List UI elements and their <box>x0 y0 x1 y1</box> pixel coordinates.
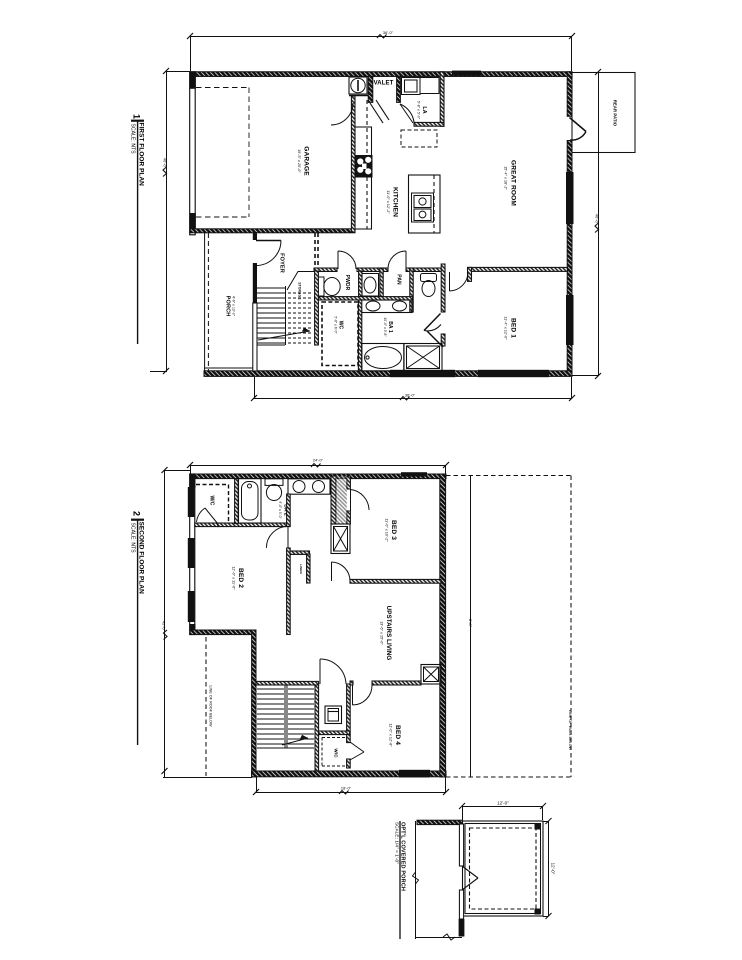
svg-text:VALET: VALET <box>374 81 394 87</box>
svg-text:1: 1 <box>132 114 142 119</box>
svg-text:5'-8" x 5'-0": 5'-8" x 5'-0" <box>417 101 421 120</box>
svg-text:42'-0": 42'-0" <box>162 621 166 632</box>
svg-text:SCALE: NTS: SCALE: NTS <box>129 124 135 155</box>
svg-text:19'-5" x 20'-0": 19'-5" x 20'-0" <box>297 149 301 173</box>
svg-text:OPT'L COVERED PORCH: OPT'L COVERED PORCH <box>400 822 406 891</box>
svg-text:REAR PATIO: REAR PATIO <box>613 100 618 127</box>
svg-text:PWDR: PWDR <box>344 275 350 291</box>
svg-text:SCALE: NTS: SCALE: NTS <box>129 523 135 554</box>
svg-text:11'-4" x 12'-0": 11'-4" x 12'-0" <box>504 316 508 340</box>
svg-text:5'-6" x 6'-0": 5'-6" x 6'-0" <box>334 316 338 333</box>
svg-text:11'-0" x 12'-8": 11'-0" x 12'-8" <box>389 723 393 747</box>
svg-text:4'-6" x 13'-0": 4'-6" x 13'-0" <box>232 296 236 317</box>
svg-text:GARAGE: GARAGE <box>303 146 310 176</box>
svg-text:KITCHEN: KITCHEN <box>392 187 399 217</box>
svg-text:36'-0": 36'-0" <box>383 31 394 35</box>
svg-text:LA: LA <box>421 106 427 113</box>
svg-text:FIRST FLOOR PLAN: FIRST FLOOR PLAN <box>137 123 144 187</box>
svg-text:W/C: W/C <box>334 748 339 758</box>
svg-text:11'-0" x 10'-2": 11'-0" x 10'-2" <box>385 518 389 542</box>
svg-text:PORCH: PORCH <box>225 296 231 317</box>
svg-text:BED 4: BED 4 <box>394 725 401 745</box>
svg-text:SECOND FLOOR PLAN: SECOND FLOOR PLAN <box>137 522 144 595</box>
svg-text:UPSTAIRS LIVING: UPSTAIRS LIVING <box>385 606 392 661</box>
svg-text:STORAGE: STORAGE <box>298 282 302 300</box>
svg-text:12'-0" x 11'-6": 12'-0" x 11'-6" <box>232 566 236 590</box>
svg-text:LINE OF ROOF BELOW: LINE OF ROOF BELOW <box>209 685 213 727</box>
svg-text:12'-0": 12'-0" <box>497 801 509 806</box>
svg-text:2: 2 <box>132 511 142 516</box>
svg-text:18'-0": 18'-0" <box>341 787 352 791</box>
svg-text:13'-6" x 15'-0": 13'-6" x 15'-0" <box>380 621 384 645</box>
svg-text:24'-0": 24'-0" <box>313 459 324 463</box>
svg-text:BED 3: BED 3 <box>390 520 397 540</box>
svg-text:8'-0": 8'-0" <box>468 619 473 628</box>
svg-text:15'-4" x 18'-2": 15'-4" x 18'-2" <box>504 166 508 190</box>
svg-text:12'-0": 12'-0" <box>551 863 556 875</box>
svg-text:GREAT ROOM: GREAT ROOM <box>510 160 517 206</box>
svg-text:BED 1: BED 1 <box>510 318 517 338</box>
svg-text:BED 2: BED 2 <box>237 568 244 588</box>
svg-text:LINE OF WALL BELOW: LINE OF WALL BELOW <box>568 710 572 751</box>
svg-text:11'-0" x 12'-2": 11'-0" x 12'-2" <box>386 190 390 214</box>
svg-text:10'-0" x 9'-8": 10'-0" x 9'-8" <box>383 317 387 336</box>
svg-text:PAN: PAN <box>396 274 402 285</box>
svg-text:9'-0" x 5'-0": 9'-0" x 5'-0" <box>278 501 282 518</box>
svg-text:W/C: W/C <box>209 495 215 505</box>
svg-text:LINEN: LINEN <box>299 564 303 574</box>
svg-text:36'-0": 36'-0" <box>405 394 416 398</box>
svg-text:FOYER: FOYER <box>279 253 285 273</box>
svg-text:SCALE: 1/4" = 1'-0": SCALE: 1/4" = 1'-0" <box>394 822 399 864</box>
